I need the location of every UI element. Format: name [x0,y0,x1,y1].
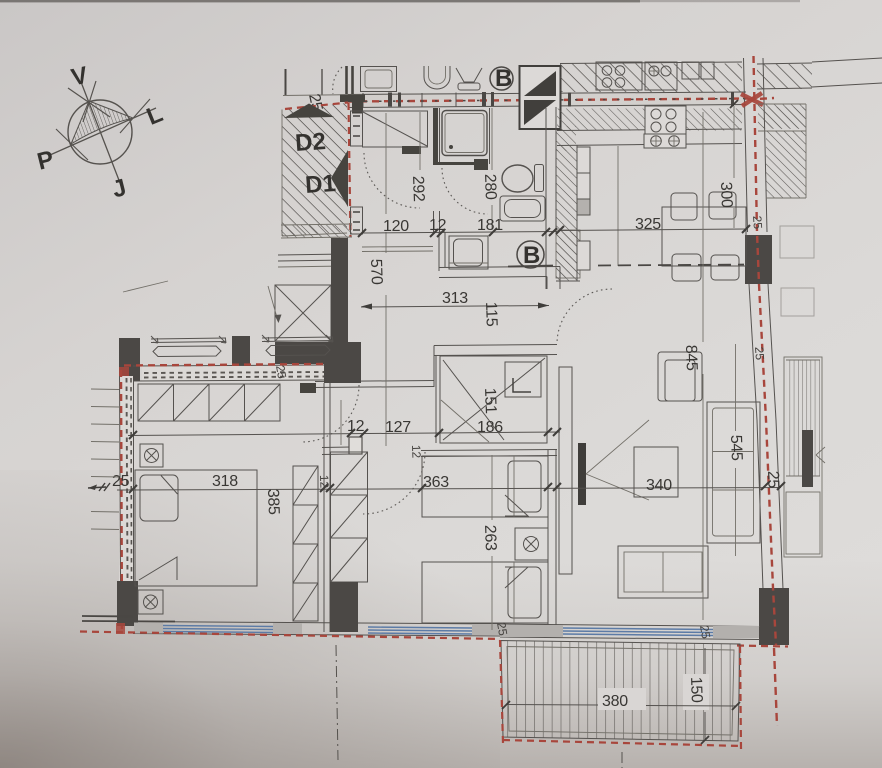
svg-text:25: 25 [112,473,130,490]
svg-text:25: 25 [750,215,765,230]
svg-text:D2: D2 [294,128,326,157]
svg-text:186: 186 [477,419,503,436]
svg-text:340: 340 [646,477,672,494]
svg-text:25: 25 [752,346,767,361]
svg-text:115: 115 [482,302,500,328]
svg-text:151: 151 [481,388,499,415]
svg-text:263: 263 [481,525,499,552]
svg-text:313: 313 [442,290,468,307]
svg-text:318: 318 [212,473,238,490]
svg-text:150: 150 [687,677,705,704]
svg-text:280: 280 [481,174,499,201]
svg-text:845: 845 [682,345,700,372]
svg-text:570: 570 [367,259,385,286]
svg-text:385: 385 [264,489,282,516]
svg-text:12: 12 [317,475,331,489]
svg-text:120: 120 [383,218,409,235]
svg-text:12: 12 [347,418,365,435]
svg-text:181: 181 [477,217,503,234]
svg-text:127: 127 [385,419,411,436]
svg-text:25: 25 [494,621,510,637]
svg-text:D1: D1 [304,170,336,199]
svg-text:12: 12 [429,217,447,234]
svg-text:25: 25 [697,624,713,640]
svg-text:B: B [495,65,512,92]
svg-text:300: 300 [717,182,735,209]
svg-text:380: 380 [602,693,628,710]
svg-text:B: B [523,242,540,269]
svg-text:25: 25 [764,471,782,489]
svg-text:12: 12 [409,445,423,459]
svg-text:325: 325 [635,216,661,233]
svg-text:292: 292 [409,176,427,203]
svg-text:25: 25 [273,364,289,380]
svg-text:545: 545 [727,435,745,462]
svg-text:363: 363 [423,474,449,491]
